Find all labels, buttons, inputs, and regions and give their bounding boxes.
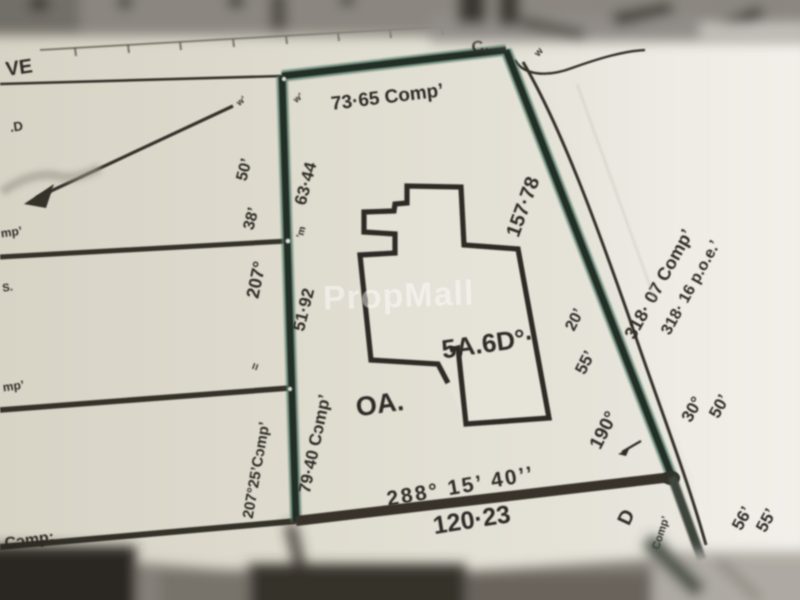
svg-text:PropMall: PropMall	[322, 274, 475, 317]
svg-text:.D: .D	[9, 118, 24, 135]
svg-text:VE: VE	[4, 55, 33, 81]
svg-text:S.: S.	[2, 281, 14, 294]
svg-text:mp’: mp’	[0, 224, 23, 241]
svg-text:mp’: mp’	[2, 378, 25, 395]
